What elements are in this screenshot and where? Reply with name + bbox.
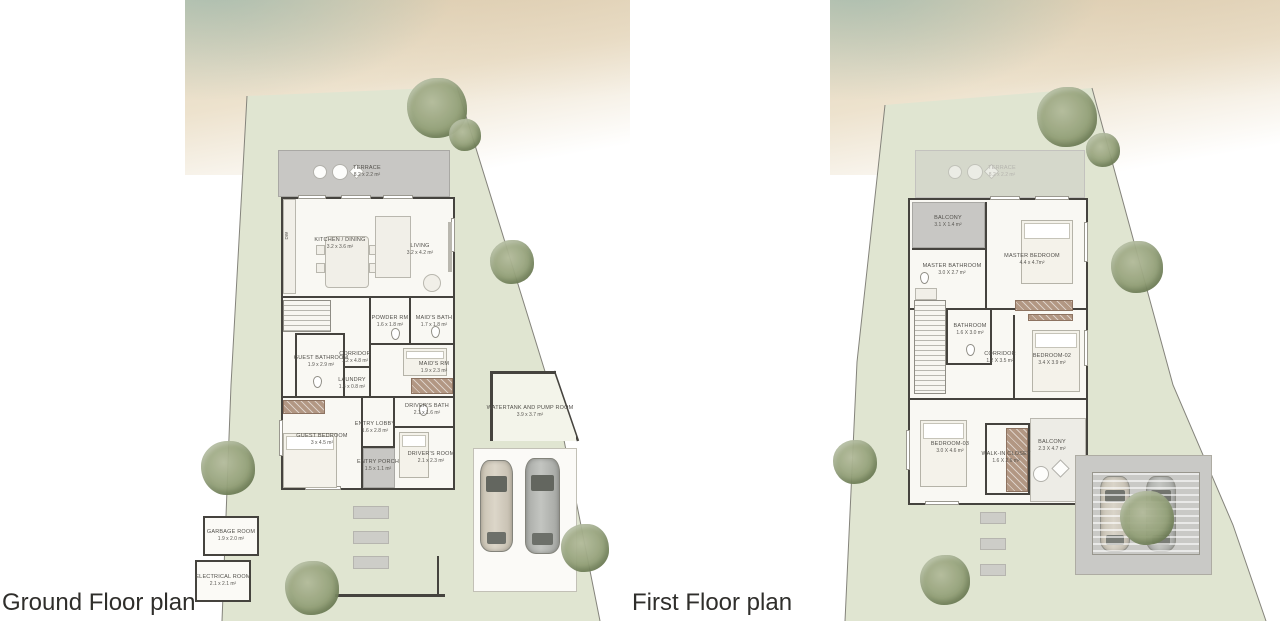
room-name: GARBAGE ROOM	[207, 529, 255, 536]
room-dims: 1.7 x 1.8 m²	[421, 322, 447, 329]
room-name: KITCHEN / DINING	[314, 237, 365, 244]
room-name: BEDROOM-02	[1033, 353, 1071, 360]
floor-plans-sheet: TERRACE8.2 x 2.2 m² KITCHEN / DINING3.2 …	[0, 0, 1280, 621]
room-label-guest-bathroom: GUEST BATHROOM1.9 x 2.9 m²	[294, 355, 349, 369]
wall	[281, 296, 455, 298]
window	[906, 430, 910, 470]
wall	[393, 426, 455, 428]
window	[341, 195, 371, 199]
room-label-electrical-room: ELECTRICAL ROOM2.1 x 2.1 m²	[195, 574, 250, 588]
room-dims: 3.9 x 3.7 m²	[517, 412, 543, 419]
room-name: LAUNDRY	[338, 377, 366, 384]
room-name: CORRIDOR	[984, 351, 1016, 358]
room-name: WATERTANK AND PUMP ROOM	[487, 405, 574, 412]
path-stone	[980, 512, 1006, 524]
path-stone	[353, 531, 389, 544]
wall	[369, 343, 455, 345]
tree	[490, 240, 534, 284]
staircase	[283, 300, 331, 332]
room-label-living: LIVING3.2 x 4.2 m²	[407, 243, 433, 257]
room-name: BATHROOM	[954, 323, 987, 330]
room-dims: 3 x 4.5 m²	[311, 440, 333, 447]
wall	[985, 202, 987, 310]
path-stone	[980, 564, 1006, 576]
room-name: DRIVER'S BATH	[405, 403, 449, 410]
garden-wall	[437, 556, 439, 596]
wall	[281, 396, 455, 398]
ground-floor-plan: TERRACE8.2 x 2.2 m² KITCHEN / DINING3.2 …	[185, 0, 630, 621]
terrace-planter-icon	[967, 164, 983, 180]
room-dims: 4.4 x 4.7m²	[1019, 260, 1044, 267]
room-label-balcony-lower: BALCONY2.3 X 4.7 m²	[1038, 439, 1066, 453]
room-name: MASTER BATHROOM	[923, 263, 982, 270]
room-label-laundry: LAUNDRY1.4 x 0.8 m²	[338, 377, 366, 391]
room-label-maids-bath: MAID'S BATH1.7 x 1.8 m²	[416, 315, 452, 329]
wall	[985, 423, 1030, 425]
kitchen-counter	[283, 199, 296, 294]
room-label-watertank: WATERTANK AND PUMP ROOM3.9 x 3.7 m²	[487, 405, 574, 419]
ground-floor-title: Ground Floor plan	[2, 589, 195, 617]
room-dims: 2.1 x 2.1 m²	[210, 581, 236, 588]
room-dims: 3.0 X 4.6 m²	[936, 448, 963, 455]
boundary-left	[845, 105, 885, 621]
room-dims: 1.6 x 2.8 m²	[362, 428, 388, 435]
room-label-bathroom: BATHROOM1.6 X 3.0 m²	[954, 323, 987, 337]
tree	[833, 440, 877, 484]
tree	[561, 524, 609, 572]
tree	[1120, 491, 1174, 545]
wall	[295, 333, 345, 335]
room-dims: 3.2 x 4.2 m²	[407, 250, 433, 257]
wall	[912, 248, 985, 250]
wall	[908, 398, 1088, 400]
master-bed	[1021, 220, 1073, 284]
room-label-maids-rm: MAID'S RM1.9 x 2.3 m²	[419, 361, 449, 375]
room-name: BALCONY	[1038, 439, 1066, 446]
room-name: MAID'S RM	[419, 361, 449, 368]
tree	[449, 119, 481, 151]
window	[383, 195, 413, 199]
tree	[1111, 241, 1163, 293]
room-label-powder-rm: POWDER RM1.6 x 1.8 m²	[372, 315, 409, 329]
room-label-drivers-room: DRIVER'S ROOM2.1 x 2.3 m²	[408, 451, 455, 465]
window	[925, 501, 959, 505]
room-dims: 1.9 x 2.0 m²	[218, 536, 244, 543]
tree	[1037, 87, 1097, 147]
room-name: BEDROOM-03	[931, 441, 969, 448]
garden-wall	[335, 594, 445, 597]
wall	[409, 298, 411, 345]
wall	[490, 371, 556, 374]
room-dims: 1.6 x 1.8 m²	[377, 322, 403, 329]
car-beige	[480, 460, 513, 552]
room-label-walk-in-closet: WALK-IN CLOSET1.6 X 2.6 m²	[981, 451, 1030, 465]
path-stone	[980, 538, 1006, 550]
room-dims: 2.1 x 1.6 m²	[414, 410, 440, 417]
room-label-drivers-bath: DRIVER'S BATH2.1 x 1.6 m²	[405, 403, 449, 417]
wardrobe	[411, 378, 453, 394]
tree	[285, 561, 339, 615]
room-name: GUEST BEDROOM	[296, 433, 347, 440]
sofa	[375, 216, 411, 278]
room-dims: 2.1 x 2.3 m²	[418, 458, 444, 465]
window	[990, 196, 1020, 200]
room-name: DRIVER'S ROOM	[408, 451, 455, 458]
wardrobe	[1028, 314, 1073, 321]
room-dims: 1.9 x 2.3 m²	[421, 368, 447, 375]
room-label-bedroom-02: BEDROOM-023.4 X 3.9 m²	[1033, 353, 1071, 367]
room-label-entry-porch: ENTRY PORCH1.5 x 1.1 m²	[357, 459, 399, 473]
room-dims: 1.4 x 0.8 m²	[339, 384, 365, 391]
room-dims: 8.2 x 2.2 m²	[989, 172, 1015, 179]
room-label-corridor: CORRIDOR1.2 X 3.5 m²	[984, 351, 1016, 365]
room-dims: 1.2 X 3.5 m²	[986, 358, 1013, 365]
room-dims: 3.2 x 3.6 m²	[327, 244, 353, 251]
wall	[985, 493, 1030, 495]
window	[1084, 222, 1088, 262]
tree	[920, 555, 970, 605]
terrace-planter-icon	[313, 165, 327, 179]
first-floor-title: First Floor plan	[632, 589, 792, 617]
tree	[1086, 133, 1120, 167]
window	[1035, 196, 1069, 200]
staircase	[914, 300, 946, 394]
room-label-terrace: TERRACE8.2 x 2.2 m²	[353, 165, 381, 179]
room-dims: 1.6 X 2.6 m²	[992, 458, 1019, 465]
room-label-terrace-ghost: TERRACE8.2 x 2.2 m²	[988, 165, 1016, 179]
room-name: BALCONY	[934, 215, 962, 222]
room-label-guest-bedroom: GUEST BEDROOM3 x 4.5 m²	[296, 433, 347, 447]
terrace-planter-icon	[332, 164, 348, 180]
wardrobe	[283, 400, 325, 414]
room-name: GUEST BATHROOM	[294, 355, 349, 362]
room-label-master-bedroom: MASTER BEDROOM4.4 x 4.7m²	[1004, 253, 1060, 267]
room-name: TERRACE	[988, 165, 1016, 172]
tree	[201, 441, 255, 495]
car-gray	[525, 458, 560, 554]
room-name: MAID'S BATH	[416, 315, 452, 322]
room-name: MASTER BEDROOM	[1004, 253, 1060, 260]
room-dims: 1.6 X 3.0 m²	[956, 330, 983, 337]
room-dims: 2.3 X 4.7 m²	[1038, 446, 1065, 453]
room-dims: 8.2 x 2.2 m²	[354, 172, 380, 179]
tv-console	[448, 222, 452, 272]
room-dims: 3.1 X 1.4 m²	[934, 222, 961, 229]
room-name: POWDER RM	[372, 315, 409, 322]
window	[298, 195, 326, 199]
path-stone	[353, 556, 389, 569]
room-label-balcony-top: BALCONY3.1 X 1.4 m²	[934, 215, 962, 229]
room-label-entry-lobby: ENTRY LOBBY1.6 x 2.8 m²	[355, 421, 396, 435]
balcony-chair-icon	[1033, 466, 1049, 482]
wall	[946, 310, 948, 365]
wardrobe	[1015, 300, 1073, 311]
room-dims: 1.9 x 2.9 m²	[308, 362, 334, 369]
room-name: LIVING	[410, 243, 429, 250]
room-dims: 1.5 x 1.1 m²	[365, 466, 391, 473]
dining-chair	[316, 263, 325, 273]
room-name: ELECTRICAL ROOM	[195, 574, 250, 581]
room-name: TERRACE	[353, 165, 381, 172]
room-label-bedroom-03: BEDROOM-033.0 X 4.6 m²	[931, 441, 969, 455]
room-label-kitchen-dining: KITCHEN / DINING3.2 x 3.6 m²	[314, 237, 365, 251]
window	[1084, 330, 1088, 366]
room-label-garbage-room: GARBAGE ROOM1.9 x 2.0 m²	[207, 529, 255, 543]
room-name: WALK-IN CLOSET	[981, 451, 1030, 458]
room-name: ENTRY LOBBY	[355, 421, 396, 428]
dishwasher-label: DW	[284, 232, 289, 240]
first-floor-plan: TERRACE8.2 x 2.2 m² BALCONY3.1 X 1.4 m² …	[830, 0, 1280, 621]
armchair	[423, 274, 441, 292]
room-label-master-bathroom: MASTER BATHROOM3.0 X 2.7 m²	[923, 263, 982, 277]
vanity	[915, 288, 937, 300]
room-name: ENTRY PORCH	[357, 459, 399, 466]
terrace-planter-icon	[948, 165, 962, 179]
room-dims: 3.4 X 3.9 m²	[1038, 360, 1065, 367]
path-stone	[353, 506, 389, 519]
room-dims: 3.0 X 2.7 m²	[938, 270, 965, 277]
